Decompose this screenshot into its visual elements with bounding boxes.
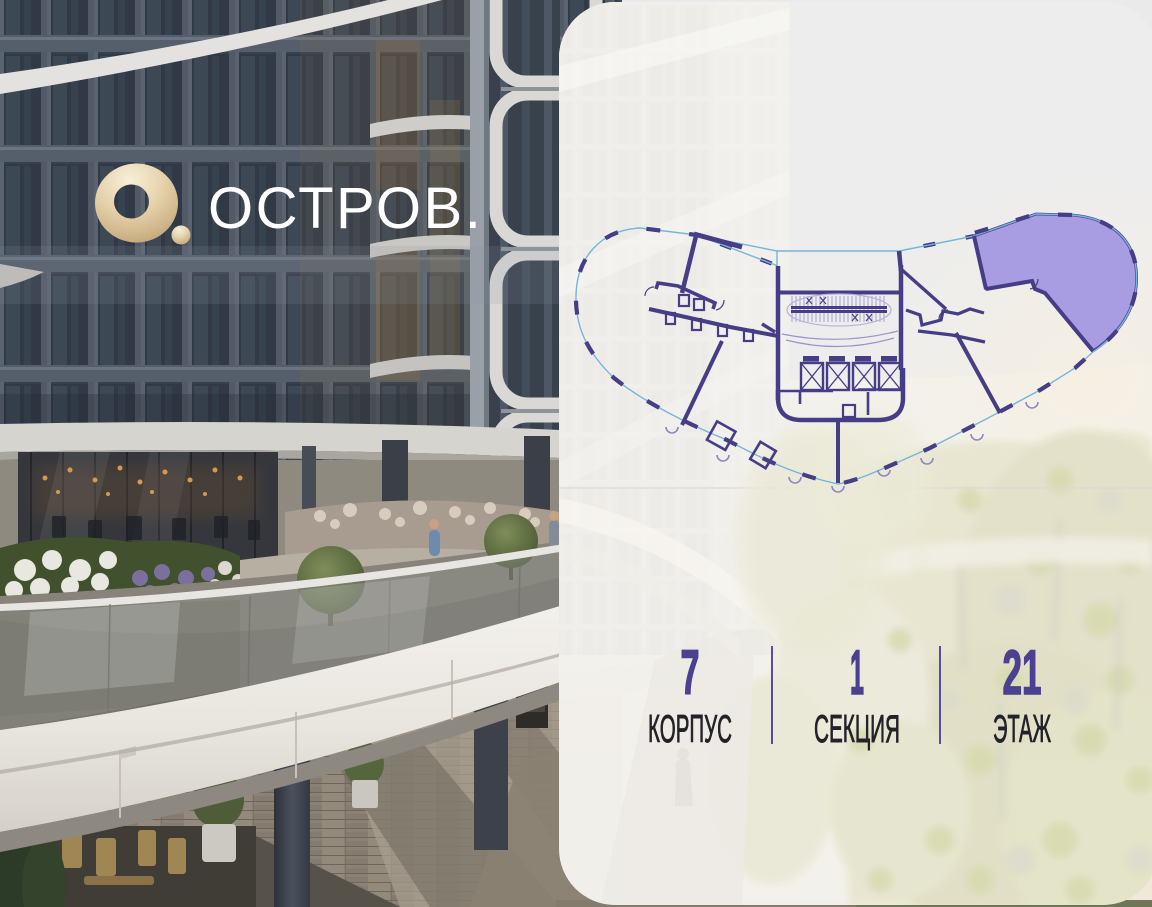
svg-text:КОРПУС: КОРПУС [648, 708, 732, 751]
svg-text:ОСТРОВ.: ОСТРОВ. [208, 176, 483, 241]
svg-text:21: 21 [1003, 638, 1042, 708]
svg-text:ЭТАЖ: ЭТАЖ [993, 708, 1051, 751]
svg-text:7: 7 [681, 638, 700, 708]
svg-text:1: 1 [850, 638, 864, 708]
svg-text:СЕКЦИЯ: СЕКЦИЯ [814, 708, 900, 751]
